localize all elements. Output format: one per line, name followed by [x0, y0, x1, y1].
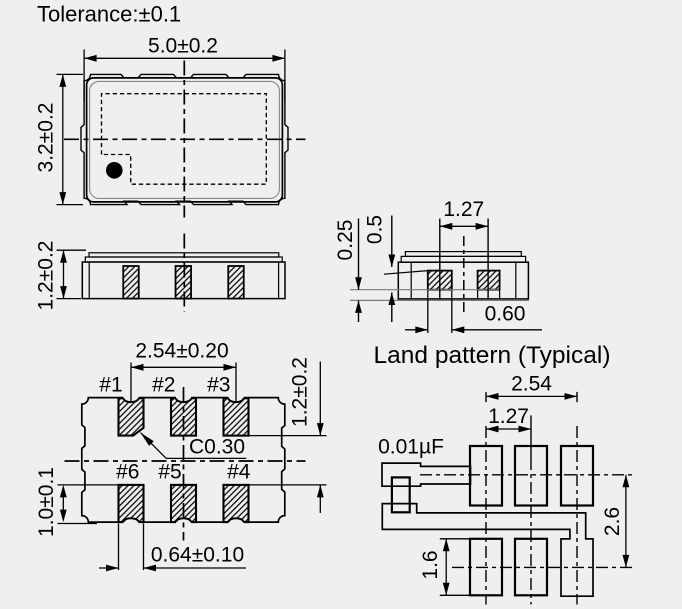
svg-text:1.0±0.1: 1.0±0.1: [35, 467, 58, 537]
svg-text:1.27: 1.27: [443, 198, 484, 221]
svg-text:0.5: 0.5: [364, 215, 387, 244]
svg-text:Tolerance:±0.1: Tolerance:±0.1: [37, 2, 181, 27]
svg-text:2.54±0.20: 2.54±0.20: [135, 340, 228, 363]
svg-text:5.0±0.2: 5.0±0.2: [148, 35, 218, 58]
svg-text:1.2±0.2: 1.2±0.2: [35, 241, 58, 311]
svg-text:2.54: 2.54: [511, 373, 552, 396]
svg-text:#1: #1: [99, 374, 122, 397]
svg-text:1.6: 1.6: [419, 550, 442, 579]
svg-text:C0.30: C0.30: [189, 436, 245, 459]
svg-text:#4: #4: [227, 461, 251, 484]
svg-text:1.2±0.2: 1.2±0.2: [289, 357, 312, 427]
svg-text:#5: #5: [158, 461, 181, 484]
svg-text:#3: #3: [207, 374, 230, 397]
svg-text:Land pattern (Typical): Land pattern (Typical): [374, 342, 611, 369]
svg-text:3.2±0.2: 3.2±0.2: [35, 103, 58, 173]
svg-text:0.64±0.10: 0.64±0.10: [151, 544, 244, 567]
svg-text:0.60: 0.60: [485, 303, 526, 326]
svg-text:#2: #2: [152, 374, 175, 397]
svg-text:1.27: 1.27: [488, 405, 529, 428]
svg-text:#6: #6: [116, 461, 139, 484]
svg-text:2.6: 2.6: [601, 507, 624, 536]
svg-text:0.25: 0.25: [334, 220, 357, 261]
svg-text:0.01µF: 0.01µF: [378, 436, 444, 459]
